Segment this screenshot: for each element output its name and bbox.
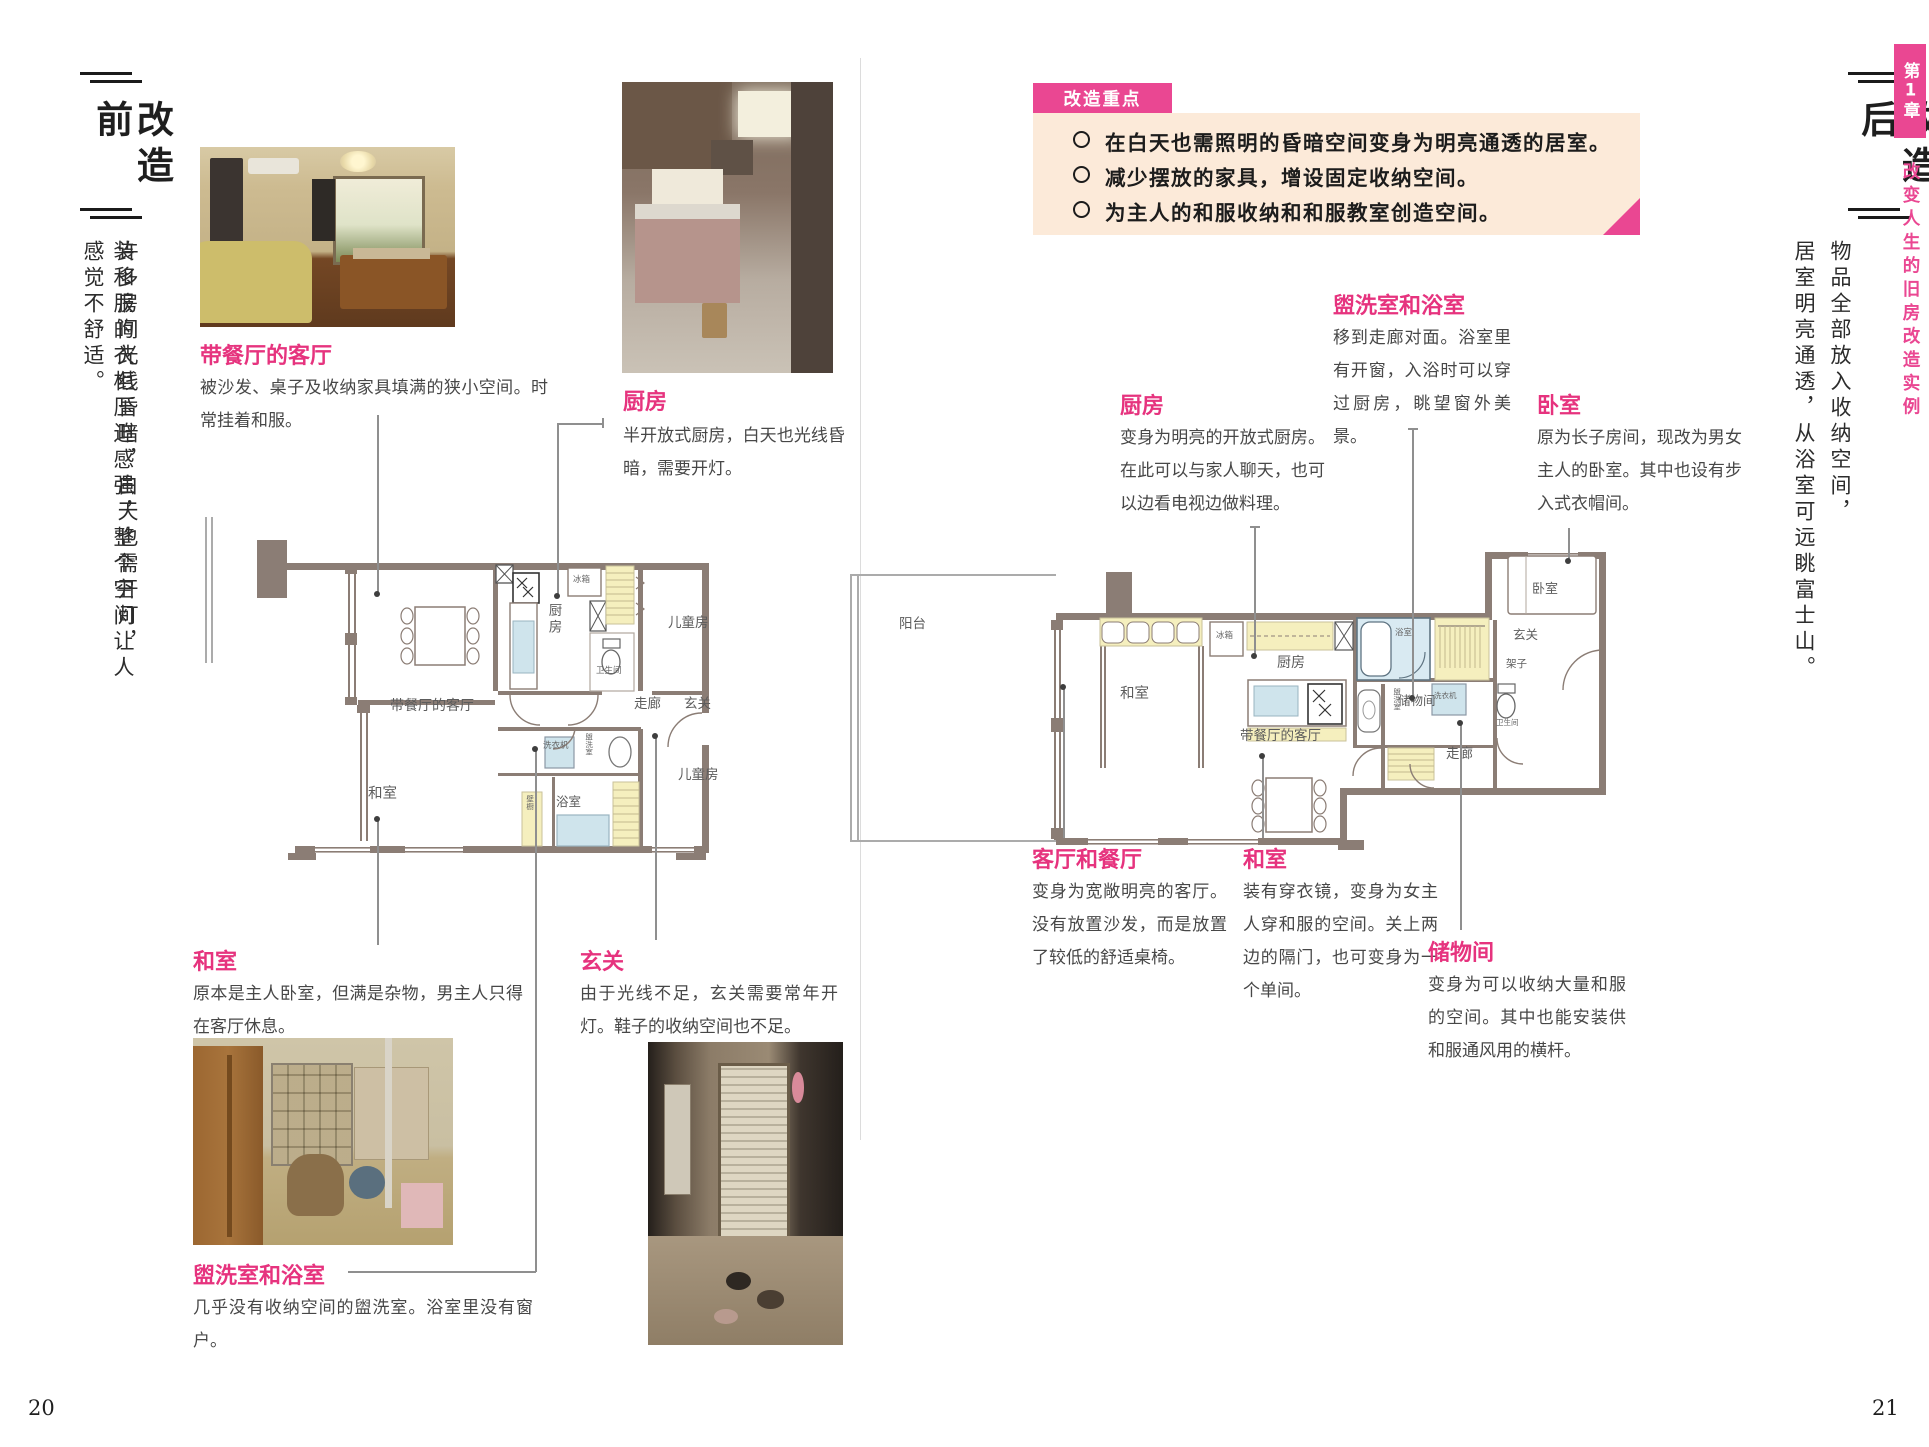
section-title-kitchen-before: 厨房 <box>623 384 667 416</box>
bullet-circle-icon <box>1073 201 1090 218</box>
room-label-kids-bottom-before: 儿童房 <box>678 768 719 784</box>
section-title-washitsu-before: 和室 <box>193 944 237 976</box>
leader-line-kitchen-before-v <box>557 423 559 595</box>
section-desc-storage-after: 变身为可以收纳大量和服的空间。其中也能安装供和服通风用的横杆。 <box>1428 969 1626 1068</box>
room-label-kids-top-before: 儿童房 <box>668 616 709 632</box>
room-label-washer-before: 洗衣机 <box>543 742 569 752</box>
room-label-bedroom-after: 卧室 <box>1532 583 1558 598</box>
photo-part <box>248 158 299 174</box>
photo-part <box>349 1166 385 1199</box>
leader-line-kitchen-before-h <box>557 423 603 425</box>
photo-part <box>353 248 430 259</box>
section-title-washroom-after: 盥洗室和浴室 <box>1333 288 1465 320</box>
room-label-kitchen-after: 厨房 <box>1277 655 1305 671</box>
section-desc-kitchen-before: 半开放式厨房，白天也光线昏暗，需要开灯。 <box>623 420 845 486</box>
photo-part <box>792 1072 804 1102</box>
section-title-washroom-before: 盥洗室和浴室 <box>193 1258 325 1290</box>
room-label-living-before: 带餐厅的客厅 <box>390 698 474 714</box>
plan-after-washitsu <box>1100 618 1202 646</box>
highlight-item: 在白天也需照明的昏暗空间变身为明亮通透的居室。 <box>1073 126 1613 156</box>
leader-line-entrance-before <box>655 737 657 940</box>
photo-part <box>635 204 741 219</box>
leader-line-washroom-after <box>1412 430 1414 697</box>
plan-after-bath <box>1357 618 1430 680</box>
room-label-toilet-after: 卫生间 <box>1496 719 1519 728</box>
leader-line-washitsu-after <box>1262 757 1264 838</box>
photo-entrance-before <box>648 1042 843 1345</box>
section-desc-washitsu-after: 装有穿衣镜，变身为女主人穿和服的空间。关上两边的隔门，也可变身为一个单间。 <box>1243 876 1438 1009</box>
photo-part <box>340 151 376 173</box>
photo-kitchen-before <box>622 82 833 373</box>
room-label-kitchen-before: 厨房 <box>545 603 561 636</box>
photo-part <box>702 303 727 338</box>
room-label-storage-after: 储物间 <box>1398 694 1436 708</box>
bullet-circle-icon <box>1073 166 1090 183</box>
leader-line-storage-after <box>1460 724 1462 930</box>
highlight-item: 减少摆放的家具，增设固定收纳空间。 <box>1073 161 1613 191</box>
room-label-entrance-before: 玄关 <box>684 697 711 713</box>
section-title-kitchen-after: 厨房 <box>1120 388 1164 420</box>
room-label-washer-after: 洗衣机 <box>1434 692 1457 701</box>
room-label-closet-before: 壁橱 <box>525 795 534 810</box>
section-desc-washroom-before: 几乎没有收纳空间的盥洗室。浴室里没有窗户。 <box>193 1292 533 1358</box>
leader-line-kitchen-after <box>1254 528 1256 656</box>
photo-part <box>227 1055 232 1237</box>
section-desc-bedroom-after: 原为长子房间，现改为男女主人的卧室。其中也设有步入式衣帽间。 <box>1537 422 1742 521</box>
leader-line-living-after <box>1063 688 1065 838</box>
room-label-living-after: 带餐厅的客厅 <box>1240 729 1321 745</box>
header-ornament-top-left <box>80 72 150 86</box>
photo-part <box>791 82 833 373</box>
page-number-right: 21 <box>1872 1396 1899 1420</box>
photo-part <box>401 1183 443 1229</box>
header-ornament-bottom-left <box>80 208 150 222</box>
section-desc-washitsu-before: 原本是主人卧室，但满是杂物，男主人只得在客厅休息。 <box>193 978 523 1044</box>
section-desc-living-after: 变身为宽敞明亮的客厅。没有放置沙发，而是放置了较低的舒适桌椅。 <box>1032 876 1227 975</box>
leader-dot-washroom-after <box>1409 695 1415 701</box>
leader-tick-washroom-after <box>1408 428 1418 430</box>
highlight-item-text: 减少摆放的家具，增设固定收纳空间。 <box>1105 161 1479 191</box>
room-label-washroom-before: 盥洗室 <box>584 733 593 756</box>
leader-line-bedroom-after <box>1568 528 1570 560</box>
highlight-item: 为主人的和服收纳和和服教室创造空间。 <box>1073 196 1613 226</box>
photo-part <box>271 1063 353 1166</box>
plan-after-walkin-closet <box>1435 618 1489 680</box>
leader-dot-living-before <box>374 591 380 597</box>
room-label-fridge-before: 冰箱 <box>573 576 590 586</box>
photo-part <box>312 179 335 240</box>
photo-part <box>287 1154 344 1216</box>
photo-living-room-before <box>200 147 455 327</box>
leader-line-washroom-before-h <box>348 1271 536 1273</box>
section-title-storage-after: 储物间 <box>1428 935 1494 967</box>
section-title-bedroom-after: 卧室 <box>1537 388 1581 420</box>
room-label-washitsu-before: 和室 <box>368 786 397 803</box>
photo-part <box>718 1063 790 1239</box>
section-title-living-before: 带餐厅的客厅 <box>200 338 332 370</box>
bullet-circle-icon <box>1073 131 1090 148</box>
leader-dot-living-after <box>1060 684 1066 690</box>
photo-part <box>648 1236 843 1345</box>
section-desc-entrance-before: 由于光线不足，玄关需要常年开灯。鞋子的收纳空间也不足。 <box>580 978 838 1044</box>
highlight-item-text: 为主人的和服收纳和和服教室创造空间。 <box>1105 196 1501 226</box>
room-label-bath-before: 浴室 <box>556 795 581 809</box>
plan-before-door-arcs <box>510 695 702 749</box>
highlights-fold-corner <box>1603 198 1640 235</box>
photo-part <box>714 1309 737 1324</box>
floor-plan-before <box>200 515 725 860</box>
highlight-item-text: 在白天也需照明的昏暗空间变身为明亮通透的居室。 <box>1105 126 1611 156</box>
leader-line-washroom-before-v <box>535 750 537 1272</box>
leader-dot-washitsu-after <box>1259 753 1265 759</box>
leader-dot-kitchen-after <box>1251 653 1257 659</box>
chapter-title: 改变人生的旧房改造实例 <box>1898 162 1923 542</box>
leader-dot-washroom-before <box>532 746 538 752</box>
photo-part <box>385 1038 392 1208</box>
section-desc-washroom-after: 移到走廊对面。浴室里有开窗，入浴时可以穿过厨房，眺望窗外美景。 <box>1333 322 1511 455</box>
left-intro-column-2: 装和服的衣柜压迫感强，整个空间让人感觉不舒适。 <box>78 240 138 700</box>
room-label-washitsu-after: 和室 <box>1120 686 1149 703</box>
room-label-bath-after: 浴室 <box>1395 629 1412 639</box>
photo-part <box>652 169 724 204</box>
room-label-shelf-after: 架子 <box>1506 658 1527 670</box>
room-label-entrance-after: 玄关 <box>1513 628 1538 642</box>
photo-part <box>635 204 741 303</box>
leader-tick-kitchen-after <box>1250 526 1260 528</box>
section-desc-kitchen-after: 变身为明亮的开放式厨房。在此可以与家人聊天，也可以边看电视边做料理。 <box>1120 422 1325 521</box>
floor-plan-after <box>848 538 1620 850</box>
chapter-tab: 第1章 <box>1894 44 1926 138</box>
plan-after-balcony-lines <box>850 574 1056 842</box>
photo-part <box>757 1290 784 1308</box>
leader-tick-kitchen-before <box>602 418 604 428</box>
photo-part <box>200 241 312 324</box>
page-number-left: 20 <box>28 1396 55 1420</box>
section-title-washitsu-after: 和室 <box>1243 842 1287 874</box>
plan-before-balcony-lines <box>205 517 213 663</box>
leader-dot-bedroom-after <box>1565 558 1571 564</box>
plan-before-washroom-fixtures <box>522 737 639 846</box>
room-label-toilet-before: 卫生间 <box>596 667 622 677</box>
left-page-title: 改造前 <box>90 100 171 220</box>
photo-washitsu-before <box>193 1038 453 1245</box>
plan-before-dining-set <box>401 607 479 665</box>
leader-dot-washitsu-before <box>374 816 380 822</box>
section-desc-living-before: 被沙发、桌子及收纳家具填满的狭小空间。时常挂着和服。 <box>200 372 548 438</box>
photo-part <box>664 1084 691 1195</box>
room-label-corridor-before: 走廊 <box>634 697 661 713</box>
plan-before-toilet <box>590 633 634 691</box>
section-title-living-after: 客厅和餐厅 <box>1032 842 1142 874</box>
plan-after-storage <box>1388 748 1434 780</box>
leader-dot-entrance-before <box>652 733 658 739</box>
highlights-tab: 改造重点 <box>1033 83 1172 113</box>
room-label-fridge-after: 冰箱 <box>1216 632 1233 642</box>
leader-line-living-before <box>377 415 379 593</box>
right-intro-column-1: 物品全部放入收纳空间， <box>1825 240 1855 700</box>
right-intro-column-2: 居室明亮通透，从浴室可远眺富士山。 <box>1789 240 1819 700</box>
leader-dot-storage-after <box>1457 720 1463 726</box>
leader-dot-kitchen-before <box>554 593 560 599</box>
section-title-entrance-before: 玄关 <box>580 944 624 976</box>
photo-part <box>340 255 447 309</box>
leader-line-washitsu-before <box>377 820 379 945</box>
book-spread: 改造前 许多房间光线昏暗，白天也需开灯， 装和服的衣柜压迫感强，整个空间让人感觉… <box>0 0 1929 1447</box>
room-label-balcony-after: 阳台 <box>899 617 926 633</box>
